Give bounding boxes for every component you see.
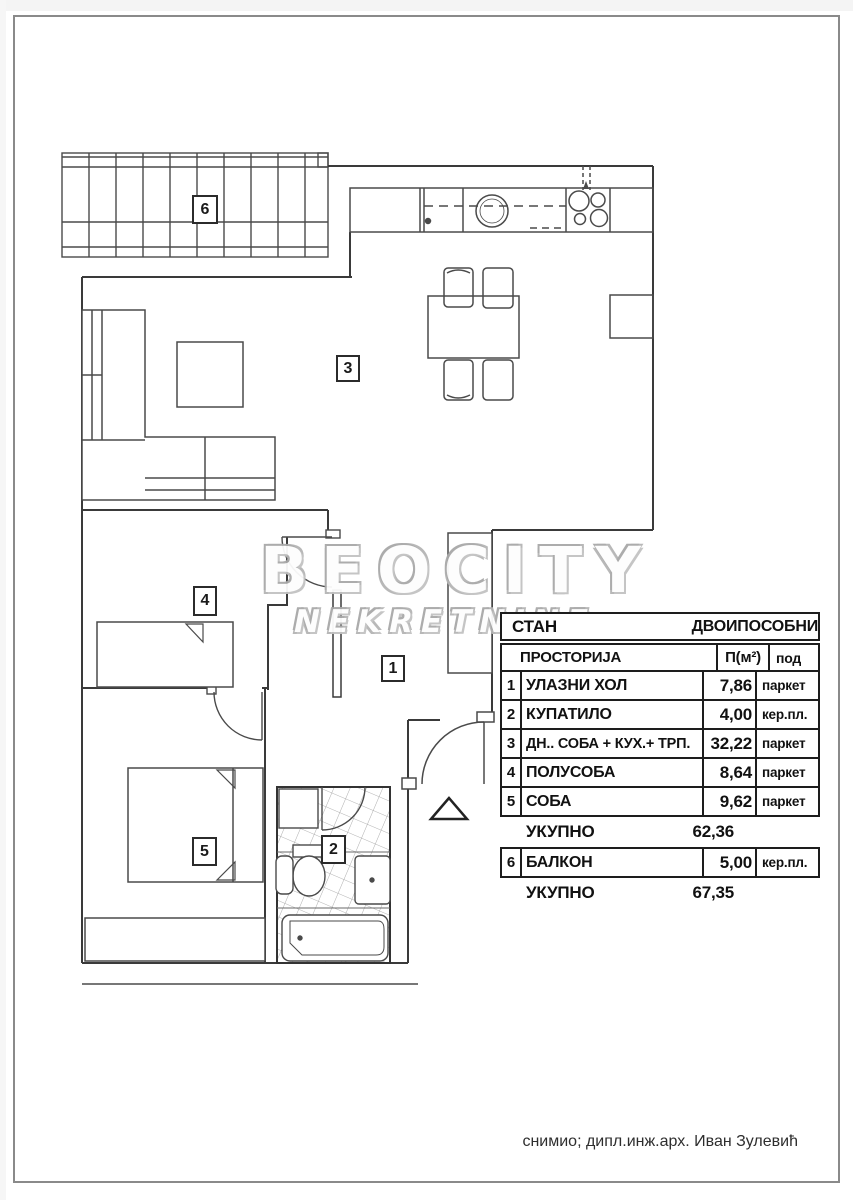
row-area: 5,00 (702, 849, 755, 876)
row-num: 4 (502, 759, 520, 786)
table-row: 6 БАЛКОН 5,00 кер.пл. (502, 849, 818, 876)
balcony-row-box: 6 БАЛКОН 5,00 кер.пл. (500, 847, 820, 878)
sink-icon (276, 856, 293, 894)
row-num: 6 (502, 849, 520, 876)
bathtub-icon (282, 915, 388, 961)
area-table: СТАН ДВОИПОСОБНИ ПРОСТОРИЈА П(м²) под 1 … (500, 612, 820, 908)
row-name: КУПАТИЛО (520, 701, 702, 728)
bathroom (276, 787, 390, 963)
row-name: БАЛКОН (520, 849, 702, 876)
row-num: 1 (502, 672, 520, 699)
row-area: 9,62 (702, 788, 755, 815)
total-row: УКУПНО 67,35 (500, 878, 820, 908)
total-value: 67,35 (688, 883, 734, 903)
scanned-floor-plan-page: BEOCITY NEKRETNINE 6 3 4 1 5 2 СТАН ДВОИ… (0, 0, 853, 1200)
room-label-half-room: 4 (193, 586, 217, 616)
room-label-hall: 1 (381, 655, 405, 682)
room-label-bathroom: 2 (321, 835, 346, 864)
room-label-room: 5 (192, 837, 217, 866)
table-row: 4 ПОЛУСОБА 8,64 паркет (502, 757, 818, 786)
row-floor: паркет (755, 672, 818, 699)
bathroom-cabinet (279, 789, 318, 828)
row-name: ПОЛУСОБА (520, 759, 702, 786)
row-name: ДН.. СОБА + КУХ.+ ТРП. (520, 730, 702, 757)
row-floor: кер.пл. (755, 849, 818, 876)
dining-set (428, 268, 519, 400)
apartment-label: СТАН (502, 617, 692, 637)
architect-credit: снимио; дипл.инж.арх. Иван Зулевић (522, 1133, 798, 1151)
coffee-table (177, 342, 243, 407)
row-num: 3 (502, 730, 520, 757)
row-floor: паркет (755, 759, 818, 786)
col-room: ПРОСТОРИЈА (502, 649, 716, 666)
watermark-brand: BEOCITY (260, 534, 654, 607)
row-num: 5 (502, 788, 520, 815)
table-row: 2 КУПАТИЛО 4,00 кер.пл. (502, 699, 818, 728)
room5-door (207, 684, 262, 740)
washing-machine-icon (355, 856, 390, 904)
room-label-living: 3 (336, 355, 360, 382)
apartment-type: ДВОИПОСОБНИ (692, 618, 818, 636)
row-area: 32,22 (702, 730, 755, 757)
col-floor: под (770, 650, 818, 666)
row-floor: кер.пл. (755, 701, 818, 728)
row-area: 4,00 (702, 701, 755, 728)
sink-icon (476, 195, 508, 227)
row-area: 7,86 (702, 672, 755, 699)
kitchen-counter (350, 166, 653, 232)
row-num: 2 (502, 701, 520, 728)
row-floor: паркет (755, 788, 818, 815)
subtotal-label: УКУПНО (500, 822, 688, 842)
table-title-row: СТАН ДВОИПОСОБНИ (500, 612, 820, 641)
row-area: 8,64 (702, 759, 755, 786)
row-name: УЛАЗНИ ХОЛ (520, 672, 702, 699)
row-name: СОБА (520, 788, 702, 815)
col-area: П(м²) (716, 645, 770, 670)
room-label-balcony: 6 (192, 195, 218, 224)
entrance-arrow-icon (431, 798, 467, 819)
total-label: УКУПНО (500, 883, 688, 903)
table-rows: 1 УЛАЗНИ ХОЛ 7,86 паркет 2 КУПАТИЛО 4,00… (500, 672, 820, 817)
table-row: 1 УЛАЗНИ ХОЛ 7,86 паркет (502, 672, 818, 699)
faucet-dot (426, 219, 431, 224)
subtotal-value: 62,36 (688, 822, 734, 842)
room5-wardrobe (85, 918, 265, 961)
table-row: 3 ДН.. СОБА + КУХ.+ ТРП. 32,22 паркет (502, 728, 818, 757)
stove-icon (569, 191, 608, 227)
room4-bed (97, 622, 233, 687)
table-row: 5 СОБА 9,62 паркет (502, 786, 818, 815)
table-column-headers: ПРОСТОРИЈА П(м²) под (500, 643, 820, 672)
wall-shelf (610, 295, 653, 338)
subtotal-row: УКУПНО 62,36 (500, 817, 820, 847)
row-floor: паркет (755, 730, 818, 757)
entrance-door (402, 712, 494, 789)
